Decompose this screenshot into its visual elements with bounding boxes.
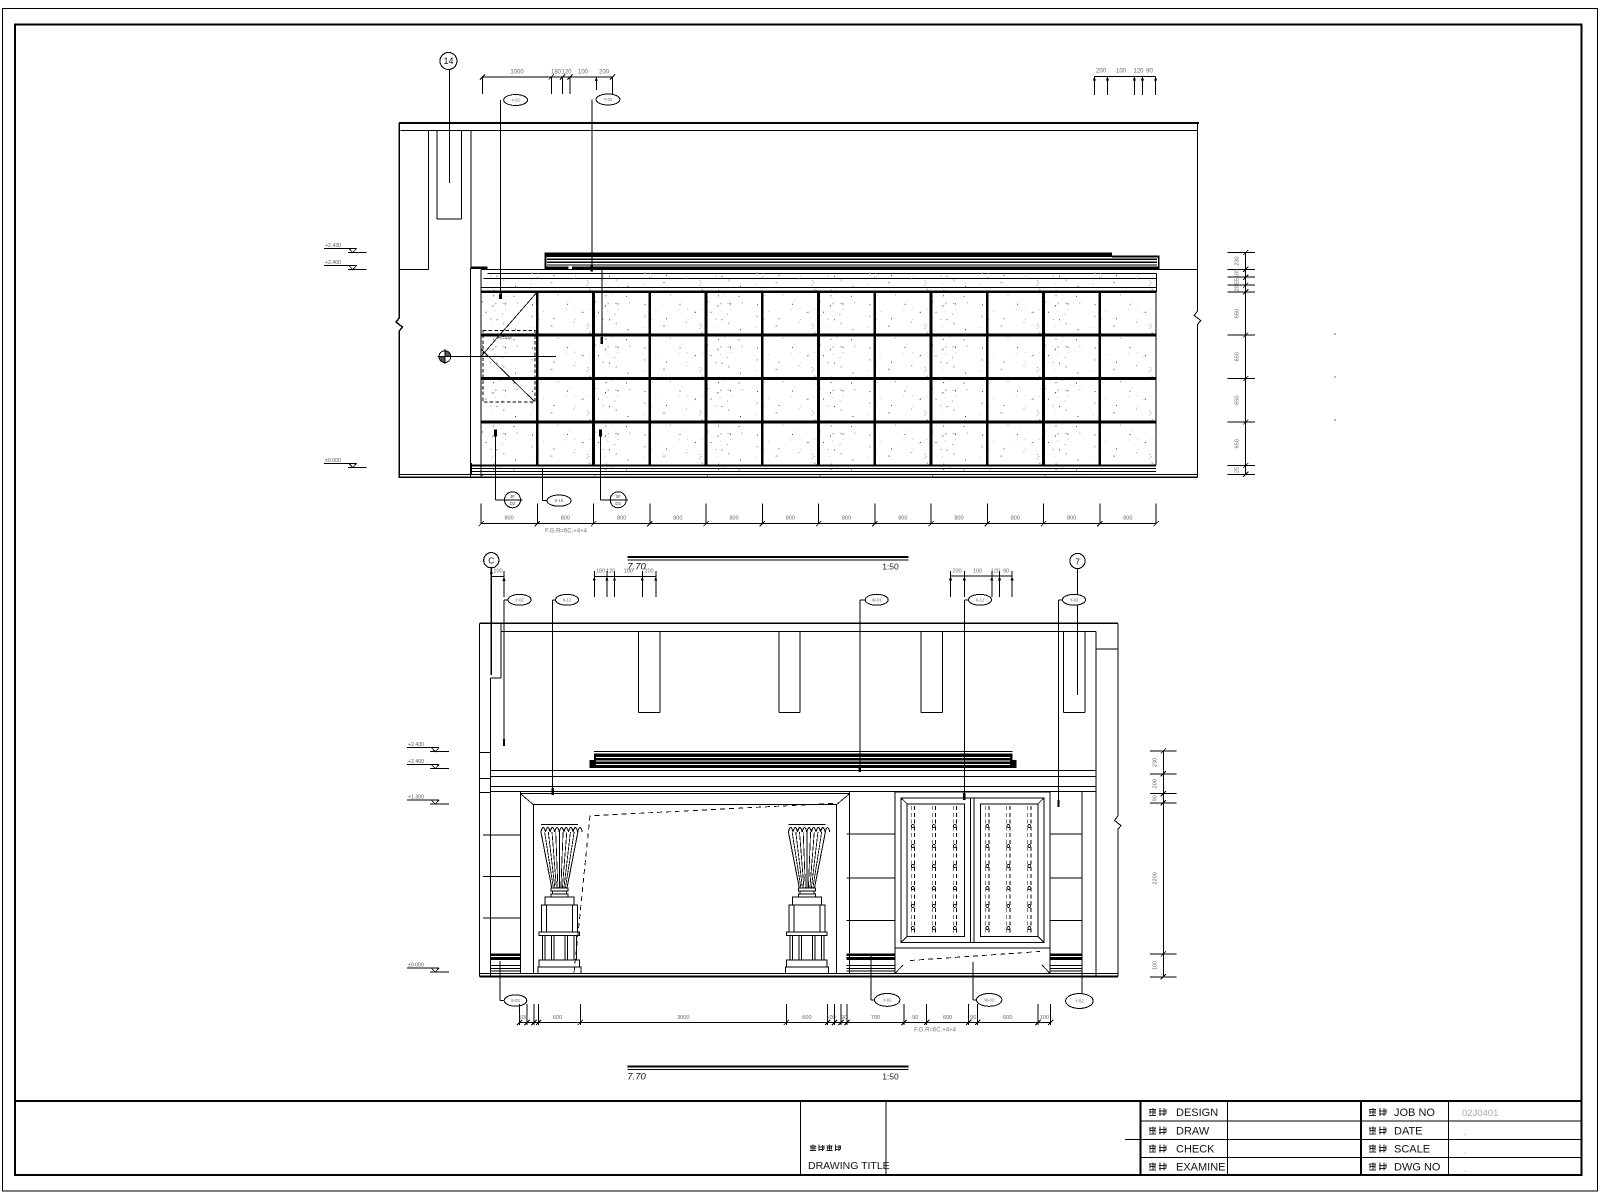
svg-text:90: 90 (1146, 69, 1153, 75)
svg-text:DESIGN: DESIGN (1176, 1107, 1218, 1119)
svg-text:180: 180 (596, 569, 605, 575)
svg-text:Y-02: Y-02 (883, 998, 892, 1003)
svg-text:90: 90 (970, 1015, 976, 1021)
svg-text:F.G.R=6C.+4+4: F.G.R=6C.+4+4 (914, 1028, 957, 1034)
svg-text:800: 800 (673, 516, 682, 522)
svg-text:3000: 3000 (677, 1015, 689, 1021)
svg-text:100: 100 (826, 1015, 835, 1021)
svg-text:3F: 3F (510, 494, 515, 499)
svg-text:2200: 2200 (1153, 872, 1159, 884)
svg-text:8-03: 8-03 (511, 998, 520, 1003)
svg-text:55: 55 (1235, 278, 1241, 284)
svg-text:.: . (1464, 1146, 1467, 1156)
svg-text:R=4M: R=4M (498, 336, 511, 342)
svg-text:800: 800 (1067, 516, 1076, 522)
svg-text:25: 25 (1235, 467, 1241, 473)
svg-text:230: 230 (1153, 758, 1159, 767)
svg-text:800: 800 (505, 516, 514, 522)
svg-text:800: 800 (842, 516, 851, 522)
svg-text:DRAWING TITLE: DRAWING TITLE (808, 1160, 890, 1172)
svg-text:120: 120 (1133, 69, 1144, 75)
svg-text:650: 650 (1235, 396, 1241, 405)
svg-text:600: 600 (553, 1015, 562, 1021)
svg-text:90: 90 (1003, 569, 1009, 575)
svg-text:100: 100 (1153, 961, 1159, 970)
svg-text:D2: D2 (615, 501, 621, 506)
svg-text:3F: 3F (616, 494, 621, 499)
svg-text:100: 100 (519, 1015, 528, 1021)
svg-text:DWG NO: DWG NO (1394, 1162, 1441, 1174)
svg-text:90: 90 (841, 1015, 847, 1021)
svg-text:180: 180 (551, 70, 562, 76)
svg-text:800: 800 (1123, 516, 1132, 522)
svg-text:800: 800 (730, 516, 739, 522)
svg-text:Y-02: Y-02 (515, 597, 524, 602)
svg-text:600: 600 (1003, 1015, 1012, 1021)
svg-text:90: 90 (912, 1015, 918, 1021)
svg-text:8-15: 8-15 (555, 498, 564, 503)
svg-text:100: 100 (973, 569, 982, 575)
svg-text:.: . (1464, 1164, 1467, 1174)
svg-text:90: 90 (1153, 795, 1159, 801)
svg-text:120: 120 (991, 569, 1000, 575)
svg-text:650: 650 (1235, 309, 1241, 318)
svg-text:14: 14 (443, 56, 453, 66)
svg-text:800: 800 (898, 516, 907, 522)
svg-text:230: 230 (1235, 256, 1241, 265)
svg-text:1:50: 1:50 (882, 1072, 899, 1082)
svg-text:800: 800 (561, 516, 570, 522)
svg-text:W-03: W-03 (984, 998, 995, 1003)
svg-text:100: 100 (1116, 69, 1127, 75)
svg-text:600: 600 (802, 1015, 811, 1021)
svg-text:D2: D2 (510, 501, 516, 506)
svg-text:.: . (1464, 1127, 1467, 1137)
svg-text:120: 120 (561, 70, 572, 76)
svg-text:8-12: 8-12 (563, 597, 572, 602)
svg-text:SCALE: SCALE (1394, 1144, 1430, 1156)
svg-text:Y-02: Y-02 (1075, 999, 1084, 1004)
svg-text:7: 7 (1075, 556, 1080, 566)
svg-text:8-12: 8-12 (976, 597, 985, 602)
svg-text:100: 100 (578, 70, 589, 76)
svg-text:650: 650 (1235, 439, 1241, 448)
svg-text:Y-03: Y-03 (1070, 597, 1079, 602)
svg-text:02J0401: 02J0401 (1462, 1108, 1498, 1119)
svg-text:JOB NO: JOB NO (1394, 1107, 1435, 1119)
svg-text:200: 200 (1096, 69, 1107, 75)
svg-text:800: 800 (617, 516, 626, 522)
svg-text:DRAW: DRAW (1176, 1126, 1210, 1138)
svg-text:200: 200 (644, 569, 653, 575)
svg-text:200: 200 (952, 569, 961, 575)
svg-text:100: 100 (1040, 1015, 1049, 1021)
svg-text:7.70: 7.70 (627, 1072, 646, 1083)
svg-text:100: 100 (493, 569, 502, 575)
svg-text:Y-01: Y-01 (604, 97, 613, 102)
svg-text:200: 200 (1153, 779, 1159, 788)
svg-text:100: 100 (624, 569, 633, 575)
svg-text:800: 800 (786, 516, 795, 522)
svg-text:105: 105 (1235, 269, 1241, 278)
svg-text:W-01: W-01 (872, 597, 883, 602)
svg-text:CHECK: CHECK (1176, 1144, 1215, 1156)
svg-text:800: 800 (1011, 516, 1020, 522)
svg-text:4-02: 4-02 (511, 98, 520, 103)
svg-text:F.G.R=6C.+4+4: F.G.R=6C.+4+4 (545, 529, 588, 535)
svg-text:1:50: 1:50 (882, 562, 899, 572)
svg-text:200: 200 (599, 70, 610, 76)
svg-text:20: 20 (1235, 285, 1241, 291)
svg-text:700: 700 (871, 1015, 880, 1021)
svg-text:120: 120 (606, 569, 615, 575)
svg-text:650: 650 (1235, 352, 1241, 361)
svg-text:EXAMINE: EXAMINE (1176, 1162, 1226, 1174)
svg-text:1000: 1000 (510, 70, 524, 76)
svg-text:800: 800 (955, 516, 964, 522)
svg-text:C: C (488, 556, 494, 566)
svg-text:600: 600 (943, 1015, 952, 1021)
svg-text:DATE: DATE (1394, 1126, 1423, 1138)
